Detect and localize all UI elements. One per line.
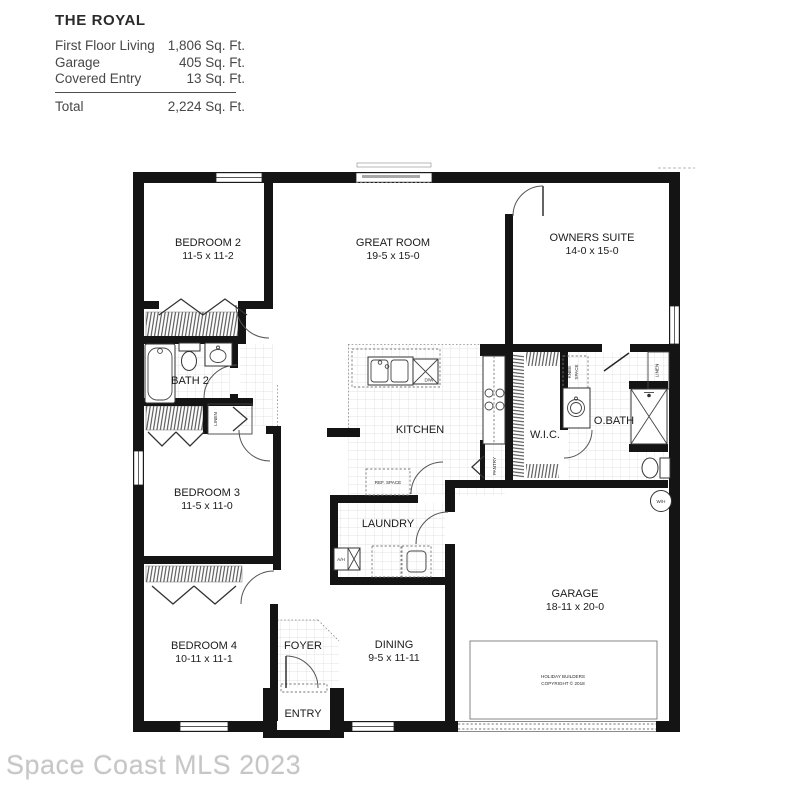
- builder-copyright-line1: HOLIDAY BUILDERS: [541, 674, 585, 679]
- bedroom3-closet-hatch: [146, 406, 203, 430]
- kitchen-label: KITCHEN: [396, 424, 444, 436]
- vanity-sink-icon: [563, 388, 590, 428]
- bedroom3-dims: 11-5 x 11-0: [181, 500, 233, 512]
- bath2-label: BATH 2: [171, 375, 209, 387]
- wic-label: W.I.C.: [530, 429, 560, 441]
- pantry-label: PANTRY: [492, 457, 497, 475]
- dining-window: [352, 722, 394, 731]
- dining-dims: 9-5 x 11-11: [368, 652, 420, 664]
- bedroom4-label: BEDROOM 4: [171, 640, 237, 652]
- floor-plan-svg: D/W REF. SPACE PANTRY KNEE SPACE: [0, 0, 800, 800]
- bedroom4-window: [180, 722, 228, 731]
- bedroom3-door-arc: [239, 430, 270, 461]
- hall-tile: [240, 344, 273, 426]
- water-heater-icon: W/H: [651, 491, 672, 512]
- air-handler-label: A/H: [337, 557, 345, 562]
- bedroom4-closet-doors: [152, 586, 236, 604]
- air-handler-icon: A/H: [334, 548, 360, 570]
- bathtub-icon: [145, 344, 175, 403]
- bedroom4-door-arc: [241, 571, 274, 604]
- linen-obath-label: LINEN: [655, 364, 660, 378]
- knee-space-label-1: KNEE: [567, 366, 572, 379]
- great-room-label: GREAT ROOM: [356, 237, 430, 249]
- entry-label: ENTRY: [284, 708, 322, 720]
- dishwasher-label: D/W: [425, 378, 435, 383]
- garage-label: GARAGE: [551, 588, 598, 600]
- shower-icon: [631, 389, 667, 444]
- bedroom4-dims: 10-11 x 11-1: [175, 653, 233, 665]
- water-heater-label: W/H: [657, 499, 666, 504]
- sliding-glass-door: [356, 163, 432, 183]
- bedroom4-closet-hatch: [146, 566, 242, 582]
- owners-suite-label: OWNERS SUITE: [550, 232, 635, 244]
- wic-rod-left: [513, 354, 524, 478]
- garage-door-opening: [458, 722, 656, 732]
- wic-rod-bottom: [526, 464, 559, 478]
- garage-door-recess: [470, 641, 657, 719]
- range-icon: [483, 356, 505, 444]
- owners-suite-dims: 14-0 x 15-0: [565, 245, 618, 257]
- bedroom3-closet-doors: [148, 432, 204, 446]
- knee-space-label-2: SPACE: [574, 364, 579, 379]
- bedroom2-dims: 11-5 x 11-2: [182, 250, 234, 262]
- great-room-dims: 19-5 x 15-0: [366, 250, 419, 262]
- owners-suite-window: [670, 306, 679, 344]
- foyer-label: FOYER: [284, 640, 322, 652]
- garage-dims: 18-11 x 20-0: [546, 601, 604, 613]
- dining-label: DINING: [375, 639, 414, 651]
- mls-watermark: Space Coast MLS 2023: [6, 750, 301, 781]
- bedroom3-window: [134, 451, 143, 485]
- bedroom2-closet-hatch: [146, 312, 238, 338]
- sink-icon: [205, 343, 232, 366]
- bedroom2-label: BEDROOM 2: [175, 237, 241, 249]
- obath-toilet-icon: [642, 458, 670, 478]
- bedroom2-window: [216, 173, 262, 182]
- floor-plan-page: THE ROYAL First Floor Living 1,806 Sq. F…: [0, 0, 800, 800]
- dishwasher-icon: D/W: [413, 359, 438, 384]
- laundry-label: LAUNDRY: [362, 518, 415, 530]
- owners-suite-door: [513, 186, 543, 216]
- ref-space-label: REF. SPACE: [375, 480, 401, 485]
- builder-copyright-line2: COPYRIGHT © 2018: [541, 680, 585, 686]
- garage-details: HOLIDAY BUILDERS COPYRIGHT © 2018: [470, 641, 657, 719]
- wic-rod-top: [526, 352, 559, 366]
- linen-hall-label: LINEN: [213, 412, 218, 426]
- obath-label: O.BATH: [594, 415, 634, 427]
- bedroom3-label: BEDROOM 3: [174, 487, 240, 499]
- kitchen-sink-icon: [368, 357, 413, 385]
